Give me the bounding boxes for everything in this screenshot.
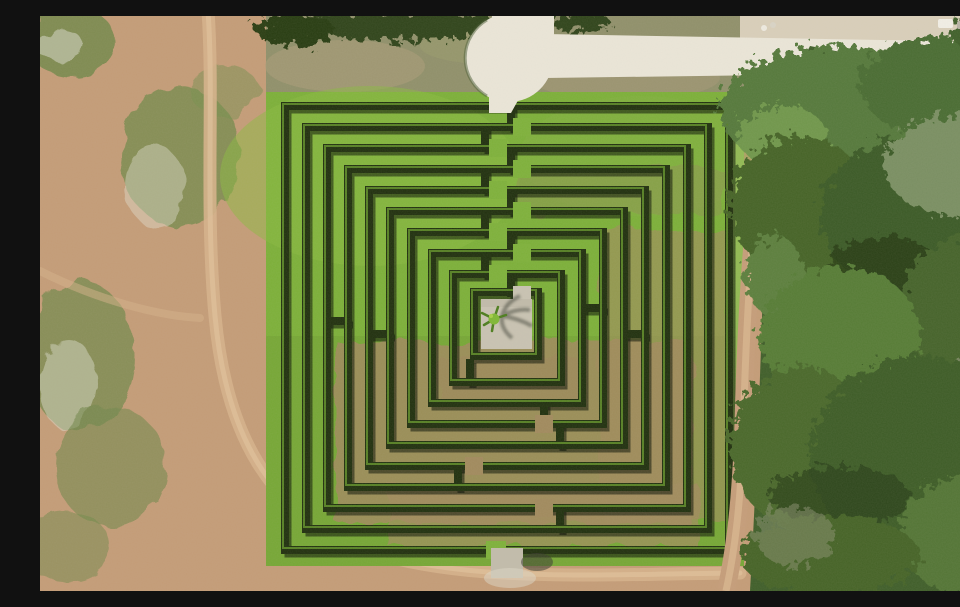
aerial-photo bbox=[40, 16, 960, 591]
photo-grain bbox=[40, 16, 960, 591]
aerial-photo-canvas bbox=[40, 16, 960, 591]
